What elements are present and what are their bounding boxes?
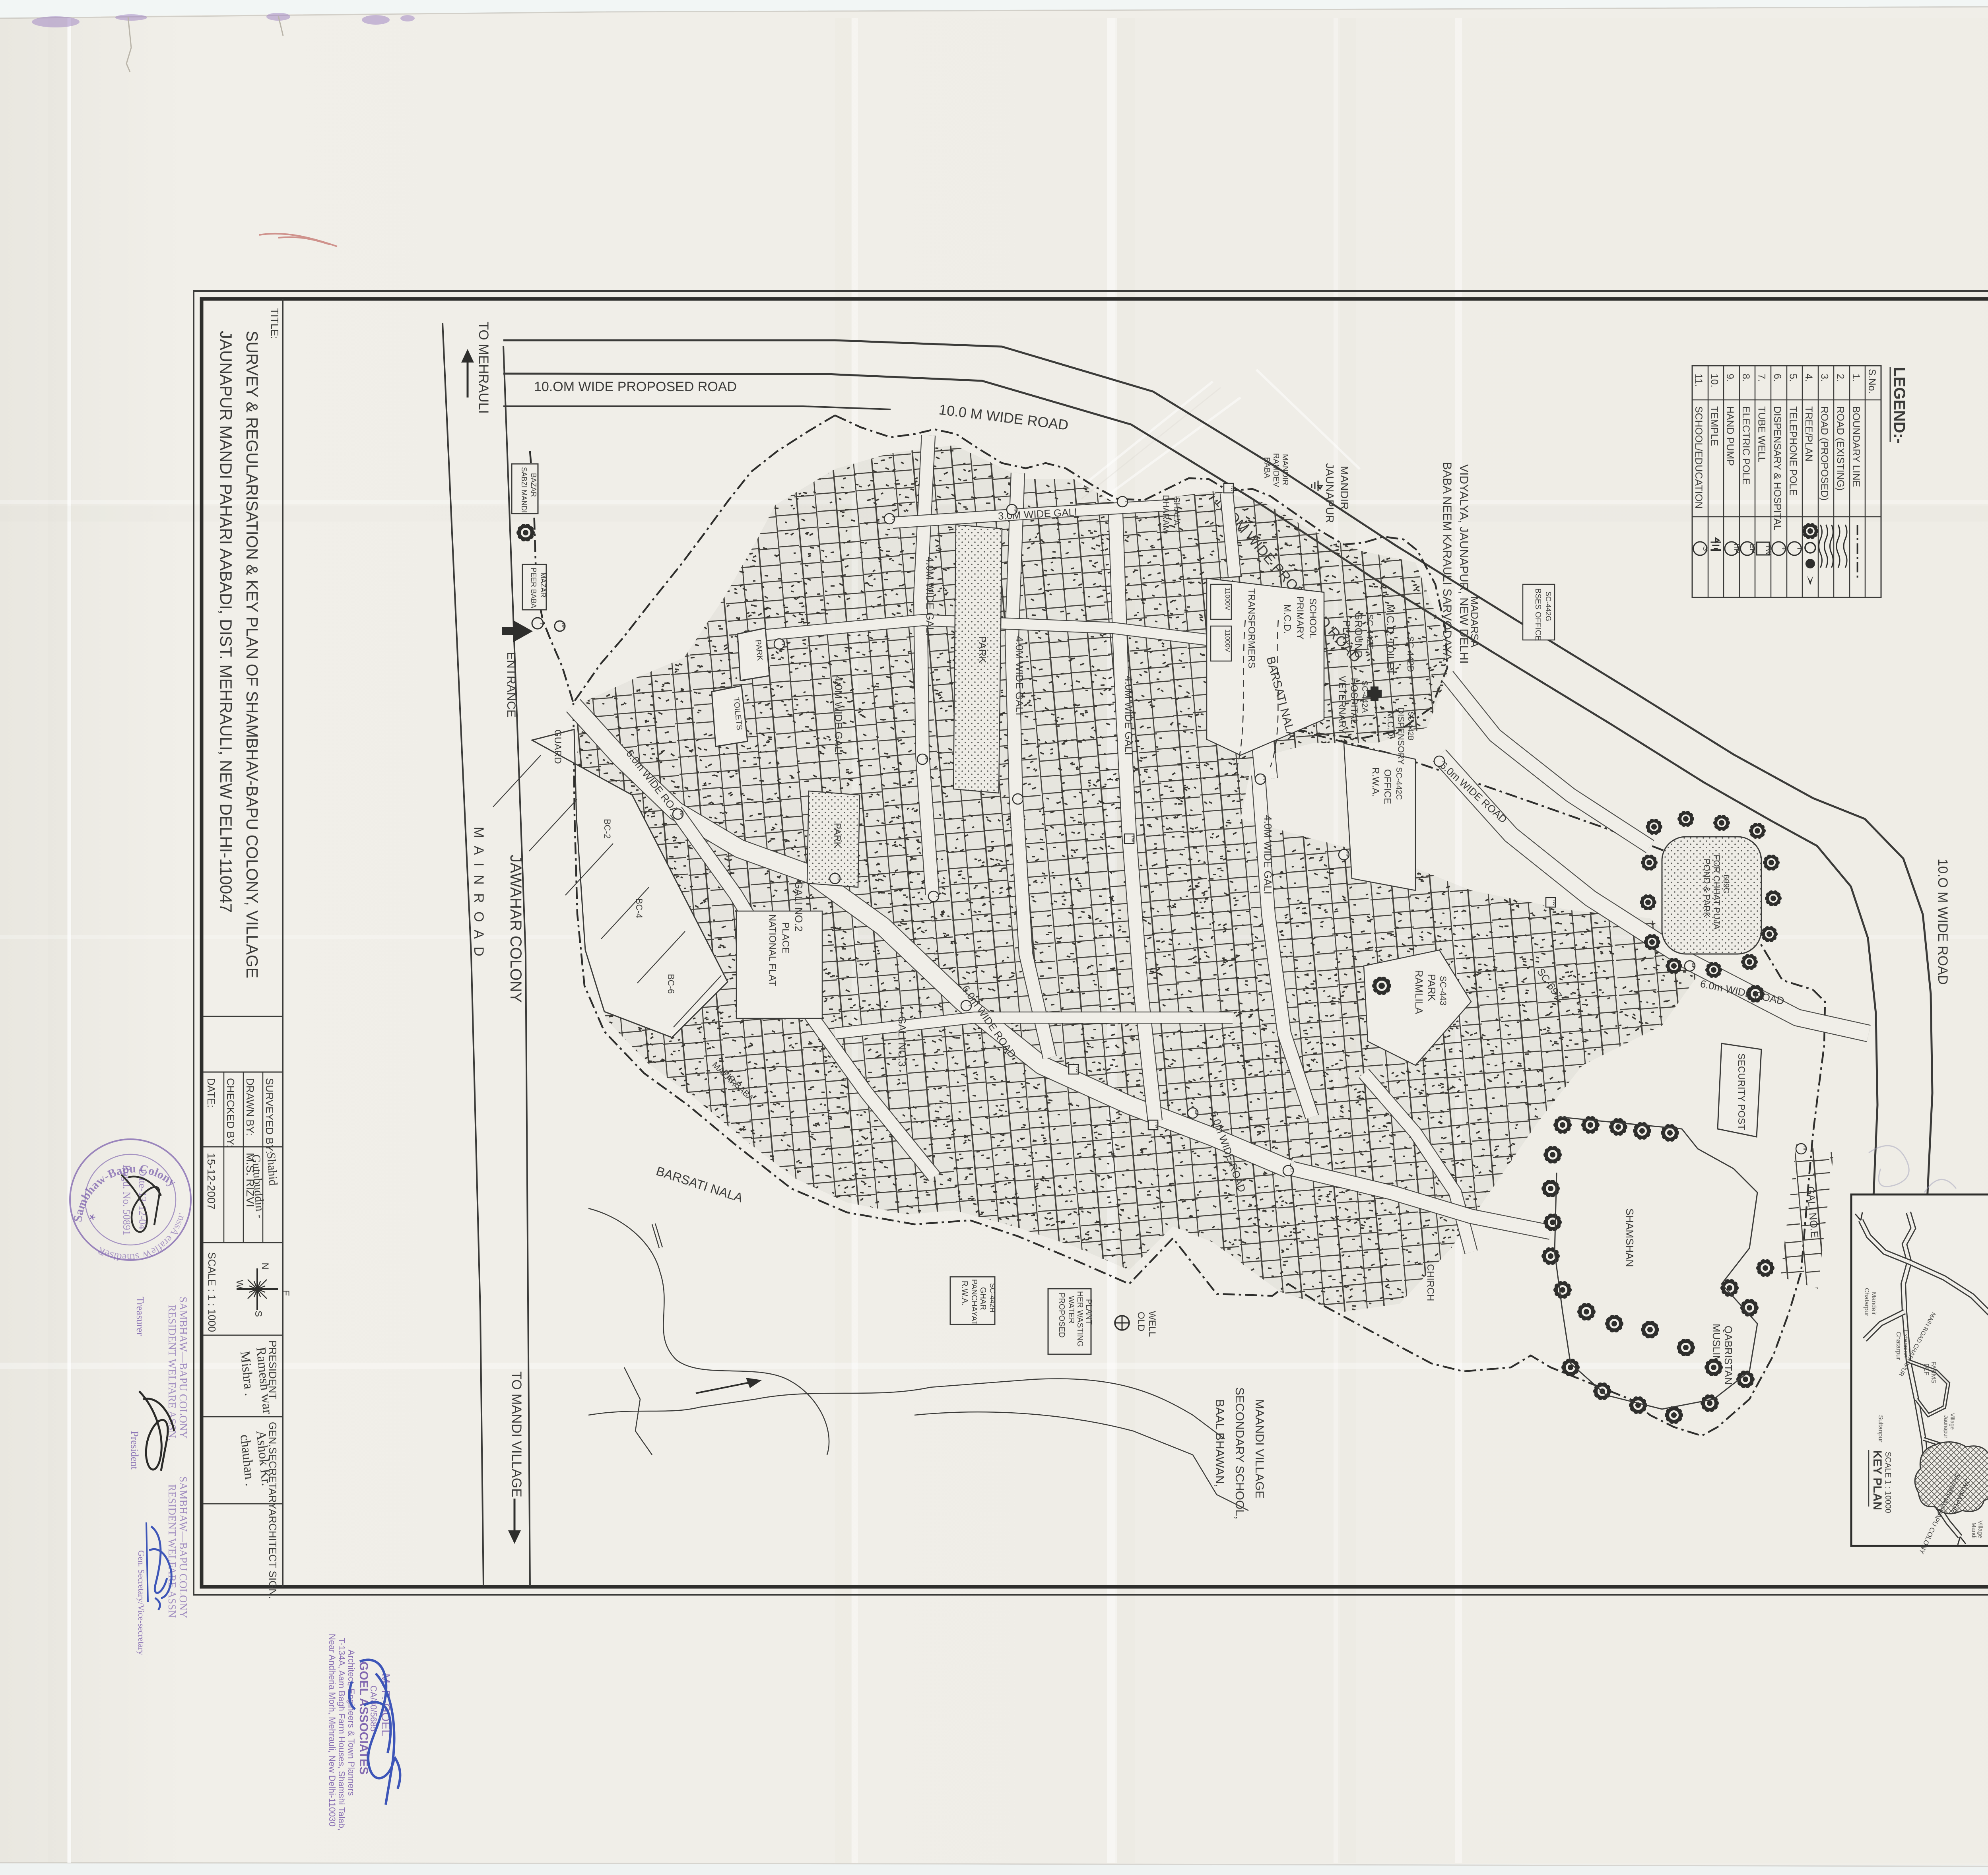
svg-text:W: W [234,1280,245,1289]
svg-text:EP: EP [780,641,785,647]
svg-text:ARCHITECT SIGN.: ARCHITECT SIGN. [267,1509,279,1599]
svg-text:ELECTRIC POLE: ELECTRIC POLE [1740,406,1751,485]
svg-text:JAWAHAR COLONY: JAWAHAR COLONY [507,855,524,1003]
svg-text:SCHOOL/EDUCATION: SCHOOL/EDUCATION [1693,406,1704,509]
svg-text:Gen. Secretary/Vice-secretary: Gen. Secretary/Vice-secretary [136,1550,146,1655]
svg-text:ENTRANCE: ENTRANCE [505,652,518,717]
svg-text:Chatarpur: Chatarpur [1895,1332,1902,1360]
svg-text:JAUNAPUR MANDI PAHARI AABADI,: JAUNAPUR MANDI PAHARI AABADI, DIST. MEHR… [217,331,235,913]
svg-text:EP: EP [1262,776,1266,782]
svg-text:SURVEYED BY:: SURVEYED BY: [264,1078,276,1154]
svg-text:HP: HP [1733,543,1741,553]
svg-text:PLAY: PLAY [1341,620,1353,646]
svg-text:TW: TW [1130,835,1135,842]
svg-text:HP: HP [924,756,928,762]
svg-text:Jaunapur: Jaunapur [1943,1415,1949,1439]
svg-text:M A I N R O A D: M A I N R O A D [471,827,486,959]
svg-text:T: T [967,1004,972,1007]
svg-text:*: * [81,1214,98,1220]
svg-text:Chatarpur: Chatarpur [1863,1288,1870,1317]
svg-text:TRANSFORMERS: TRANSFORMERS [1246,588,1257,668]
svg-text:TEMPLE: TEMPLE [1709,406,1720,446]
svg-text:EP: EP [1194,1110,1199,1116]
svg-text:11000V: 11000V [1224,629,1231,652]
svg-text:PROPOSED: PROPOSED [1057,1293,1066,1338]
svg-text:Mandi: Mandi [1971,1522,1977,1539]
svg-text:PLANT: PLANT [1084,1299,1093,1324]
svg-text:MUSLIM: MUSLIM [1710,1324,1722,1364]
svg-text:TW: TW [1154,1121,1159,1128]
svg-text:SAMBHAW—BAPU COLONY: SAMBHAW—BAPU COLONY [177,1476,189,1618]
svg-text:SC-442H: SC-442H [988,1283,996,1313]
svg-text:Sultanpur: Sultanpur [1877,1415,1884,1443]
svg-text:VETERNARY: VETERNARY [1337,676,1347,734]
svg-text:R.W.A.: R.W.A. [960,1281,969,1305]
svg-text:BC-2: BC-2 [602,819,612,839]
svg-text:OFFICE: OFFICE [1382,769,1393,804]
svg-text:4.0M WIDE GALI: 4.0M WIDE GALI [1262,815,1274,894]
svg-text:HP: HP [1013,506,1018,512]
svg-text:NATIONAL FLAT: NATIONAL FLAT [767,914,778,986]
svg-text:HP: HP [836,875,841,881]
svg-text:DATE:: DATE: [205,1078,217,1108]
svg-text:11.: 11. [1693,374,1704,387]
svg-text:+: + [1780,547,1788,551]
svg-text:PRIMARY: PRIMARY [1295,596,1305,640]
svg-text:HER WASTING: HER WASTING [1076,1291,1084,1347]
svg-text:PLACE: PLACE [780,922,791,954]
svg-text:Shahid: Shahid [264,1152,280,1186]
svg-text:9.: 9. [1724,374,1736,382]
svg-text:BC-6: BC-6 [666,974,676,994]
svg-text:4.0M WIDE GALI: 4.0M WIDE GALI [833,676,845,755]
svg-text:Near Andheria Morh, Mehrauli,: Near Andheria Morh, Mehrauli, New Delhi-… [327,1634,337,1827]
svg-text:SURVEY & REGULARISATION & KEY: SURVEY & REGULARISATION & KEY PLAN OF SH… [243,331,261,978]
svg-text:5.: 5. [1788,374,1799,382]
svg-text:DISPENSORY: DISPENSORY [1396,708,1406,765]
svg-text:EP: EP [891,516,895,522]
svg-text:T-134A, Aam Bagh Farm Houses,: T-134A, Aam Bagh Farm Houses, Shamshi Ta… [337,1638,347,1830]
svg-text:10.OM WIDE PROPOSED ROAD: 10.OM WIDE PROPOSED ROAD [534,379,737,394]
svg-text:SHALA: SHALA [1172,497,1182,525]
svg-text:11000V: 11000V [1224,588,1231,611]
svg-text:JAUNAPUR: JAUNAPUR [1324,463,1336,523]
svg-text:HOSPITAL: HOSPITAL [1349,678,1359,724]
svg-text:Architect, Engineers & Town Pl: Architect, Engineers & Town Planners [346,1650,356,1796]
svg-text:EP: EP [1749,544,1757,553]
svg-text:BSES OFFICE: BSES OFFICE [1534,588,1542,641]
svg-text:SCALE 1 : 10000: SCALE 1 : 10000 [1883,1452,1892,1513]
svg-text:TO MEHRAULI: TO MEHRAULI [476,322,491,414]
svg-text:FARMS: FARMS [1930,1361,1937,1383]
svg-text:DISPENSARY & HOSPITAL: DISPENSARY & HOSPITAL [1772,406,1783,531]
svg-text:T: T [935,895,940,898]
svg-text:M.C.D.: M.C.D. [1282,604,1293,634]
svg-text:RESIDENT WELFARE ASSN.: RESIDENT WELFARE ASSN. [166,1305,178,1441]
svg-text:DLF: DLF [1923,1363,1930,1375]
svg-text:T: T [1441,760,1445,763]
svg-text:CHECKED BY:: CHECKED BY: [225,1078,237,1148]
svg-text:SC-442C: SC-442C [1394,767,1403,800]
svg-text:RAMDEV: RAMDEV [1272,453,1280,487]
svg-text:M.C.D.: M.C.D. [1386,712,1396,739]
svg-text:BABA: BABA [1262,457,1271,479]
svg-text:T: T [1124,500,1128,503]
svg-text:HP: HP [679,811,684,817]
svg-text:4.0M WIDE GALI: 4.0M WIDE GALI [1013,636,1025,715]
svg-text:BC-4: BC-4 [634,898,644,918]
svg-text:WELL: WELL [1147,1311,1157,1337]
svg-text:SABZI MANDI: SABZI MANDI [520,467,528,513]
svg-text:6.: 6. [1772,374,1783,382]
svg-text:S: S [253,1311,264,1317]
svg-text:2.: 2. [1835,374,1846,382]
svg-text:Extension: Extension [1902,1330,1909,1357]
svg-text:BABA NEEM KARAULI SARVODAYA: BABA NEEM KARAULI SARVODAYA [1441,462,1454,661]
svg-text:M.S. RIZVI: M.S. RIZVI [244,1153,256,1207]
svg-text:FOR CHHAT PUJA: FOR CHHAT PUJA [1712,855,1722,930]
svg-text:HP: HP [1345,851,1350,857]
svg-text:President: President [129,1431,140,1470]
svg-text:SC-442D: SC-442D [1406,636,1415,672]
svg-text:E: E [280,1290,291,1296]
svg-text:ROAD (PROPOSED): ROAD (PROPOSED) [1819,406,1830,501]
svg-text:SHAMSHAN: SHAMSHAN [1624,1208,1636,1267]
svg-text:R.W.A.: R.W.A. [1370,767,1381,797]
svg-text:S.No.: S.No. [1866,369,1877,394]
svg-text:GALI NO.2: GALI NO.2 [793,881,805,931]
svg-text:RESIDENT WELFARE ASSN: RESIDENT WELFARE ASSN [166,1484,178,1618]
svg-text:TW: TW [1765,545,1772,555]
svg-text:HP: HP [1802,1146,1807,1152]
svg-text:15-12-2007: 15-12-2007 [205,1153,217,1210]
svg-text:7.: 7. [1756,374,1767,382]
svg-text:VIDYALYA, JAUNAPUR, NEW DELHI: VIDYALYA, JAUNAPUR, NEW DELHI [1457,464,1470,664]
svg-text:4.0M WIDE GALI: 4.0M WIDE GALI [924,556,936,636]
svg-text:Village: Village [1977,1520,1984,1538]
svg-text:PEER BABA: PEER BABA [530,568,538,608]
svg-text:CHIRCH: CHIRCH [1425,1264,1436,1301]
svg-text:RAMLILA: RAMLILA [1413,970,1425,1014]
svg-text:SC-442B: SC-442B [1407,712,1415,741]
svg-text:TREE/PLAN: TREE/PLAN [1803,406,1814,461]
svg-text:POND & PARK: POND & PARK [1702,859,1712,918]
svg-text:EP: EP [1691,963,1696,969]
svg-text:SAMBHAW—BAPU COLONY: SAMBHAW—BAPU COLONY [177,1297,189,1439]
svg-text:BAZAR: BAZAR [530,473,538,497]
svg-text:Treasurer: Treasurer [134,1297,146,1336]
svg-text:SCALE : 1 : 1000: SCALE : 1 : 1000 [206,1252,218,1332]
svg-text:T: T [1019,798,1024,801]
svg-text:DRAWN BY:: DRAWN BY: [244,1078,256,1136]
svg-text:10.: 10. [1709,374,1720,388]
svg-text:MANDIR: MANDIR [1338,466,1351,510]
svg-text:GUARD: GUARD [552,729,563,764]
svg-text:699C: 699C [1722,874,1730,894]
svg-text:KEY PLAN: KEY PLAN [1871,1450,1884,1510]
svg-text:3.: 3. [1819,374,1830,382]
svg-text:SC-442G: SC-442G [1544,591,1552,621]
svg-text:LEGEND:-: LEGEND:- [1891,367,1908,444]
svg-text:T: T [538,621,545,625]
svg-text:MANDIR: MANDIR [1281,454,1289,485]
svg-text:PARK: PARK [832,823,843,848]
svg-text:TITLE:: TITLE: [269,308,281,339]
svg-text:BAAL BHAWAN,: BAAL BHAWAN, [1213,1399,1226,1487]
svg-text:BOUNDARY LINE: BOUNDARY LINE [1850,406,1862,487]
svg-text:PANCHAYAT: PANCHAYAT [970,1279,978,1325]
svg-text:GROUND: GROUND [1353,612,1365,658]
svg-text:MAANDI VILLAGE: MAANDI VILLAGE [1253,1399,1266,1499]
svg-text:M.C.D. TOILET: M.C.D. TOILET [1384,604,1396,675]
svg-text:10.O M WIDE ROAD: 10.O M WIDE ROAD [1935,859,1950,985]
svg-text:SECURITY POST: SECURITY POST [1736,1053,1747,1130]
svg-text:TW: TW [1230,485,1235,492]
svg-text:ROAD (EXISTING): ROAD (EXISTING) [1835,406,1846,491]
svg-text:SC-442E: SC-442E [1365,614,1375,650]
svg-text:TW: TW [1075,1066,1079,1073]
svg-text:4.0M WIDE GALI: 4.0M WIDE GALI [1123,676,1135,755]
svg-text:4.: 4. [1803,374,1814,382]
svg-text:OLD: OLD [1136,1312,1146,1331]
svg-text:GHAR: GHAR [978,1287,987,1310]
svg-text:SCHOOL: SCHOOL [1307,598,1318,638]
svg-text:Village: Village [1949,1413,1956,1430]
svg-text:TO MANDI VILLAGE: TO MANDI VILLAGE [509,1371,524,1497]
svg-text:GALI NO.3: GALI NO.3 [896,1016,908,1066]
svg-text:WATER: WATER [1067,1296,1076,1324]
svg-text:8.: 8. [1740,374,1751,382]
svg-text:SECONDARY SCHOOL,: SECONDARY SCHOOL, [1233,1387,1246,1519]
svg-text:HP: HP [561,623,566,629]
svg-text:1.: 1. [1850,374,1862,382]
svg-text:MAZAR: MAZAR [539,572,547,597]
svg-text:S: S [1702,546,1710,551]
svg-text:PARK: PARK [977,636,988,664]
svg-text:TW: TW [1552,899,1557,906]
svg-text:DHARAM: DHARAM [1161,495,1171,533]
svg-text:HAND PUMP: HAND PUMP [1724,406,1736,466]
svg-text:T: T [1796,547,1804,551]
svg-text:TELEPHONE POLE: TELEPHONE POLE [1788,406,1799,496]
svg-text:EP: EP [1289,1168,1294,1174]
svg-text:QABRISTAN: QABRISTAN [1722,1326,1734,1384]
svg-text:PARK: PARK [1426,974,1438,1002]
svg-text:Mandeir: Mandeir [1870,1292,1877,1315]
svg-text:N: N [260,1262,270,1269]
svg-text:TUBE WELL: TUBE WELL [1756,406,1767,463]
svg-text:SC-443: SC-443 [1438,976,1448,1006]
